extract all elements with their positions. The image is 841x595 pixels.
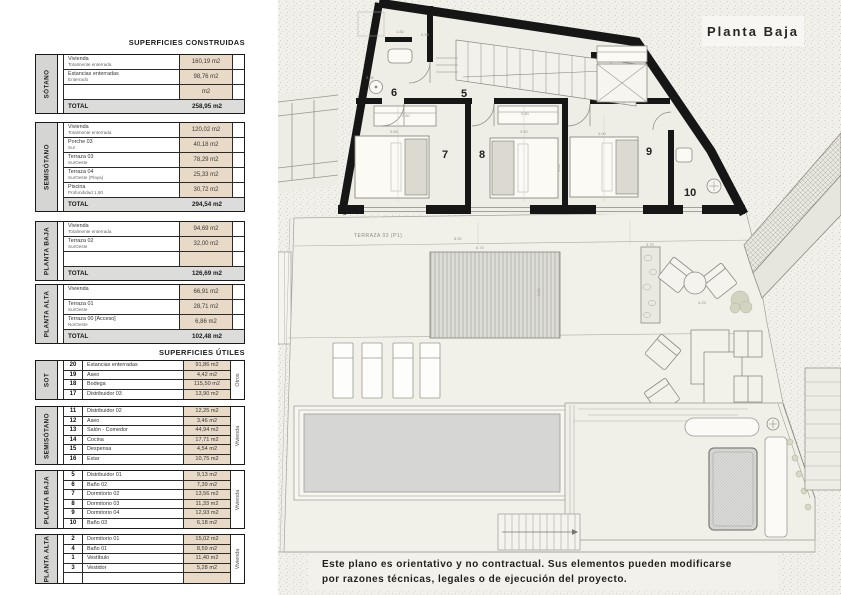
- total-value: 294,54 m2: [181, 201, 233, 208]
- room-number-cell: 11: [64, 407, 83, 416]
- heading-superficies-utiles: SUPERFICIES ÚTILES: [35, 348, 245, 357]
- rows-utiles-planta-alta: 2 Dormitorio 01 15,02 m2 4 Baño 01 8,59 …: [63, 535, 230, 583]
- room-area-cell: 44,94 m2: [183, 426, 230, 435]
- deck-strip: [765, 437, 787, 537]
- row-sublabel: Profundidad 1,50: [68, 190, 179, 196]
- table-row: Piscina Profundidad 1,50 30,72 m2: [64, 183, 244, 198]
- row-sublabel: SurOeste: [68, 160, 179, 166]
- rows-construidas-sotano: Vivienda Totalmente enterrada 160,19 m2 …: [64, 55, 244, 100]
- bed-room7: [355, 136, 429, 198]
- room-area-cell: 3,46 m2: [183, 417, 230, 426]
- room-area-cell: 91,86 m2: [183, 361, 230, 370]
- room-name-cell: Baño 02: [83, 481, 183, 490]
- terraza-label: TERRAZA 02 (P1): [354, 233, 402, 239]
- room-number-cell: 13: [64, 426, 83, 435]
- table-row: 8 Dormitorio 03 11,33 m2: [64, 500, 230, 510]
- row-value: 28,71 m2: [179, 300, 232, 314]
- room-area-cell: 10,75 m2: [183, 455, 230, 465]
- room-number-cell: 14: [64, 436, 83, 445]
- room-name-cell: Dormitorio 04: [83, 509, 183, 518]
- total-value: 258,95 m2: [181, 103, 233, 110]
- room-number-cell: 6: [64, 481, 83, 490]
- room-name-cell: Salón - Comedor: [83, 426, 183, 435]
- total-label: TOTAL: [64, 333, 181, 340]
- total-label: TOTAL: [64, 103, 181, 110]
- rows-construidas-semisotano: Vivienda Totalmente enterrada 120,02 m2 …: [64, 123, 244, 198]
- row-sublabel: SurOeste: [68, 307, 179, 313]
- room-name-cell: Cocina: [83, 436, 183, 445]
- table-row: Terraza 03 SurOeste 78,29 m2: [64, 153, 244, 168]
- table-row: Terraza 04 SurOeste (Playa) 25,33 m2: [64, 168, 244, 183]
- table-utiles-planta-baja: PLANTA BAJA 5 Distribuidor 01 9,13 m2 6 …: [35, 470, 245, 529]
- table-row: 15 Despensa 4,54 m2: [64, 445, 230, 455]
- table-row: 9 Dormitorio 04 12,93 m2: [64, 509, 230, 519]
- dimension-label: 4.25: [698, 300, 707, 305]
- floor-label-sotano: SÓTANO: [36, 55, 58, 113]
- row-value: 160,19 m2: [179, 55, 232, 69]
- room-area-cell: 4,42 m2: [183, 371, 230, 380]
- row-label: Vivienda: [68, 286, 179, 292]
- row-sublabel: SurOeste (Playa): [68, 175, 179, 181]
- row-spare-cell: [232, 237, 244, 251]
- total-row: TOTAL 294,54 m2: [64, 198, 244, 211]
- table-row: 5 Distribuidor 01 9,13 m2: [64, 471, 230, 481]
- room-number-cell: 16: [64, 455, 83, 465]
- room-area-cell: 15,02 m2: [183, 535, 230, 544]
- room-name-cell: Baño 01: [83, 545, 183, 554]
- rows-utiles-planta-baja: 5 Distribuidor 01 9,13 m2 6 Baño 02 7,39…: [63, 471, 230, 528]
- room-name-cell: Vestidor: [83, 564, 183, 573]
- dimension-label: 4.00: [598, 131, 607, 136]
- row-spare-cell: [232, 183, 244, 197]
- row-spare-cell: [232, 55, 244, 69]
- category-column: Vivienda: [230, 471, 244, 528]
- table-row: 10 Baño 03 6,18 m2: [64, 519, 230, 529]
- table-construidas-planta-baja: PLANTA BAJA Vivienda Totalmente enterrad…: [35, 221, 245, 281]
- stone-pillar: [641, 247, 660, 323]
- floor-label-semisotano: SEMISÓTANO: [36, 123, 58, 211]
- room-area-cell: 9,13 m2: [183, 471, 230, 480]
- row-spare-cell: [232, 168, 244, 182]
- table-utiles-semisotano: SEMISÓTANO 11 Distribuidor 02 12,25 m2 1…: [35, 406, 245, 465]
- table-row: Vivienda Totalmente enterrada 120,02 m2: [64, 123, 244, 138]
- rows-utiles-semisotano: 11 Distribuidor 02 12,25 m2 12 Aseo 3,46…: [63, 407, 230, 464]
- total-label: TOTAL: [64, 270, 181, 277]
- row-value: 94,69 m2: [179, 222, 232, 236]
- table-utiles-sotano: SOT 20 Estancias enterradas 91,86 m2 19 …: [35, 360, 245, 400]
- dimension-label: 3.50: [390, 129, 399, 134]
- table-row: 11 Distribuidor 02 12,25 m2: [64, 407, 230, 417]
- table-row: 1 Vestíbulo 11,40 m2: [64, 554, 230, 564]
- table-row: Porche 03 Sur 40,18 m2: [64, 138, 244, 153]
- category-column: Otros: [230, 361, 244, 399]
- row-sublabel: SurOeste: [68, 244, 179, 250]
- sink: [676, 148, 692, 162]
- row-value: 66,91 m2: [179, 285, 232, 299]
- room-name-cell: Aseo: [83, 371, 183, 380]
- room-number-cell: 8: [64, 500, 83, 509]
- table-row: 17 Distribuidor 03 13,90 m2: [64, 390, 230, 400]
- row-value: 30,72 m2: [179, 183, 232, 197]
- heading-superficies-construidas: SUPERFICIES CONSTRUIDAS: [35, 38, 245, 47]
- room-number-cell: 4: [64, 545, 83, 554]
- room-name-cell: Bodega: [83, 380, 183, 389]
- room-area-cell: 11,40 m2: [183, 554, 230, 563]
- table-row: 12 Aseo 3,46 m2: [64, 417, 230, 427]
- row-value: m2: [179, 85, 232, 99]
- room-label-10: 10: [684, 187, 696, 199]
- dimension-label: 8.50: [454, 236, 463, 241]
- table-row: [64, 252, 244, 267]
- disclaimer-line2: por razones técnicas, legales o de ejecu…: [322, 574, 627, 585]
- table-row: 16 Estar 10,75 m2: [64, 455, 230, 465]
- category-column: Vivienda: [230, 535, 244, 583]
- table-row: 19 Aseo 4,42 m2: [64, 371, 230, 381]
- row-sublabel: Totalmente enterrada: [68, 229, 179, 235]
- room-area-cell: 6,18 m2: [183, 519, 230, 529]
- plan-sheet: { "plan": { "title": "Planta Baja", "ter…: [0, 0, 841, 595]
- row-value: 120,02 m2: [179, 123, 232, 137]
- room-number-cell: 2: [64, 535, 83, 544]
- room-name-cell: Despensa: [83, 445, 183, 454]
- room-label-9: 9: [646, 146, 652, 158]
- room-number-cell: 3: [64, 564, 83, 573]
- room-name-cell: Distribuidor 02: [83, 407, 183, 416]
- total-value: 102,48 m2: [181, 333, 233, 340]
- plan-title: Planta Baja: [707, 24, 799, 39]
- row-value: 78,29 m2: [179, 153, 232, 167]
- row-spare-cell: [232, 222, 244, 236]
- floor-plan-drawing: 6 5 7 8 9 10 TERRAZA 02 (P1) 1.82 0.96 2…: [278, 0, 841, 595]
- room-number-cell: 9: [64, 509, 83, 518]
- table-row: Terraza 01 SurOeste 28,71 m2: [64, 300, 244, 315]
- room-number-cell: 17: [64, 390, 83, 400]
- total-row: TOTAL 102,48 m2: [64, 330, 244, 343]
- row-spare-cell: [232, 315, 244, 329]
- table-row: m2: [64, 85, 244, 100]
- room-area-cell: 8,59 m2: [183, 545, 230, 554]
- floor-label-planta-baja: PLANTA BAJA: [36, 222, 58, 280]
- table-construidas-planta-alta: PLANTA ALTA Vivienda 66,91 m2 Terraza 01…: [35, 284, 245, 344]
- room-label-5: 5: [461, 88, 467, 100]
- rows-utiles-sot: 20 Estancias enterradas 91,86 m2 19 Aseo…: [63, 361, 230, 399]
- room-label-7: 7: [442, 149, 448, 161]
- room-name-cell: Dormitorio 03: [83, 500, 183, 509]
- dimension-label: 1.82: [396, 29, 405, 34]
- rows-construidas-planta-baja: Vivienda Totalmente enterrada 94,69 m2 T…: [64, 222, 244, 267]
- row-value: [179, 252, 232, 266]
- shower-enclosure: [597, 64, 647, 102]
- room-number-cell: 7: [64, 490, 83, 499]
- dimension-label: 0.96: [421, 32, 430, 37]
- floor-label-semisotano-utiles: SEMISÓTANO: [36, 407, 58, 464]
- table-row: 3 Vestidor 5,28 m2: [64, 564, 230, 574]
- dimension-label: 0.60: [402, 113, 411, 118]
- room-number-cell: 1: [64, 554, 83, 563]
- room-label-6: 6: [391, 87, 397, 99]
- room-area-cell: 17,71 m2: [183, 436, 230, 445]
- table-row: 4 Baño 01 8,59 m2: [64, 545, 230, 555]
- room-area-cell: 115,50 m2: [183, 380, 230, 389]
- room-name-cell: Aseo: [83, 417, 183, 426]
- row-value: 40,18 m2: [179, 138, 232, 152]
- deck-area: [565, 403, 815, 540]
- total-label: TOTAL: [64, 201, 181, 208]
- table-row: 6 Baño 02 7,39 m2: [64, 481, 230, 491]
- table-row: 18 Bodega 115,50 m2: [64, 380, 230, 390]
- dimension-label: 2.62: [536, 287, 541, 296]
- room-number-cell: [64, 573, 83, 583]
- row-sublabel: Totalmente enterrada: [68, 62, 179, 68]
- room-name-cell: Dormitorio 01: [83, 535, 183, 544]
- room-number-cell: 12: [64, 417, 83, 426]
- room-name-cell: [83, 573, 183, 583]
- row-sublabel: Totalmente enterrada: [68, 130, 179, 136]
- row-spare-cell: [232, 85, 244, 99]
- floor-label-planta-alta-utiles: PLANTA ALTA: [36, 535, 58, 583]
- sink: [388, 49, 412, 63]
- room-area-cell: 13,56 m2: [183, 490, 230, 499]
- neighbor-stairs-right: [805, 368, 841, 490]
- bench: [685, 418, 759, 436]
- room-number-cell: 18: [64, 380, 83, 389]
- room-number-cell: 20: [64, 361, 83, 370]
- exterior-stairs: [498, 514, 580, 550]
- category-column: Vivienda: [230, 407, 244, 464]
- table-row: Vivienda Totalmente enterrada 94,69 m2: [64, 222, 244, 237]
- room-name-cell: Distribuidor 03: [83, 390, 183, 400]
- table-row: Terraza 00 [Acceso] NorOeste 6,86 m2: [64, 315, 244, 330]
- table-construidas-semisotano: SEMISÓTANO Vivienda Totalmente enterrada…: [35, 122, 245, 212]
- room-area-cell: 13,90 m2: [183, 390, 230, 400]
- room-number-cell: 5: [64, 471, 83, 480]
- table-row: 13 Salón - Comedor 44,94 m2: [64, 426, 230, 436]
- table-row: 2 Dormitorio 01 15,02 m2: [64, 535, 230, 545]
- dimension-label: 5.05: [556, 163, 561, 172]
- row-spare-cell: [232, 153, 244, 167]
- room-label-8: 8: [479, 149, 485, 161]
- room-number-cell: 10: [64, 519, 83, 529]
- table-row: [64, 573, 230, 583]
- row-sublabel: Sur: [68, 145, 179, 151]
- room-area-cell: 5,28 m2: [183, 564, 230, 573]
- room-name-cell: Distribuidor 01: [83, 471, 183, 480]
- row-value: 25,33 m2: [179, 168, 232, 182]
- table-row: 14 Cocina 17,71 m2: [64, 436, 230, 446]
- table-row: Terraza 02 SurOeste 32,00 m2: [64, 237, 244, 252]
- table-row: 20 Estancias enterradas 91,86 m2: [64, 361, 230, 371]
- room-name-cell: Baño 03: [83, 519, 183, 529]
- disclaimer-line1: Este plano es orientativo y no contractu…: [322, 559, 732, 570]
- row-sublabel: Enterrado: [68, 77, 179, 83]
- rows-construidas-planta-alta: Vivienda 66,91 m2 Terraza 01 SurOeste 28…: [64, 285, 244, 330]
- total-value: 126,69 m2: [181, 270, 233, 277]
- room-number-cell: 19: [64, 371, 83, 380]
- total-row: TOTAL 126,69 m2: [64, 267, 244, 280]
- row-spare-cell: [232, 70, 244, 84]
- table-row: Estancias enterradas Enterrado 98,76 m2: [64, 70, 244, 85]
- floor-label-planta-baja-utiles: PLANTA BAJA: [36, 471, 58, 528]
- room-name-cell: Estancias enterradas: [83, 361, 183, 370]
- table-utiles-planta-alta: PLANTA ALTA 2 Dormitorio 01 15,02 m2 4 B…: [35, 534, 245, 584]
- neighbor-structure-left: [278, 88, 338, 192]
- row-sublabel: NorOeste: [68, 322, 179, 328]
- row-spare-cell: [232, 252, 244, 266]
- dimension-label: 3.70: [646, 242, 655, 247]
- table-row: 7 Dormitorio 02 13,56 m2: [64, 490, 230, 500]
- round-table: [684, 272, 706, 294]
- room-area-cell: 12,25 m2: [183, 407, 230, 416]
- row-spare-cell: [232, 285, 244, 299]
- dimension-label: 2.35: [366, 75, 375, 80]
- room-area-cell: 4,54 m2: [183, 445, 230, 454]
- row-spare-cell: [232, 300, 244, 314]
- row-value: 98,76 m2: [179, 70, 232, 84]
- row-value: 32,00 m2: [179, 237, 232, 251]
- room-area-cell: [183, 573, 230, 583]
- room-name-cell: Estar: [83, 455, 183, 465]
- room-number-cell: 15: [64, 445, 83, 454]
- floor-label-planta-alta: PLANTA ALTA: [36, 285, 58, 343]
- room-area-cell: 12,93 m2: [183, 509, 230, 518]
- total-row: TOTAL 258,95 m2: [64, 100, 244, 113]
- row-spare-cell: [232, 138, 244, 152]
- floor-label-sot: SOT: [36, 361, 58, 399]
- table-row: Vivienda Totalmente enterrada 160,19 m2: [64, 55, 244, 70]
- dimension-label: 3.50: [520, 129, 529, 134]
- dimension-label: 6.74: [476, 245, 485, 250]
- row-value: 6,86 m2: [179, 315, 232, 329]
- dimension-label: 0.60: [521, 111, 530, 116]
- room-name-cell: Vestíbulo: [83, 554, 183, 563]
- jacuzzi: [709, 448, 757, 530]
- table-construidas-sotano: SÓTANO Vivienda Totalmente enterrada 160…: [35, 54, 245, 114]
- row-spare-cell: [232, 123, 244, 137]
- room-area-cell: 7,39 m2: [183, 481, 230, 490]
- swimming-pool: [294, 406, 570, 500]
- room-area-cell: 11,33 m2: [183, 500, 230, 509]
- table-row: Vivienda 66,91 m2: [64, 285, 244, 300]
- room-name-cell: Dormitorio 02: [83, 490, 183, 499]
